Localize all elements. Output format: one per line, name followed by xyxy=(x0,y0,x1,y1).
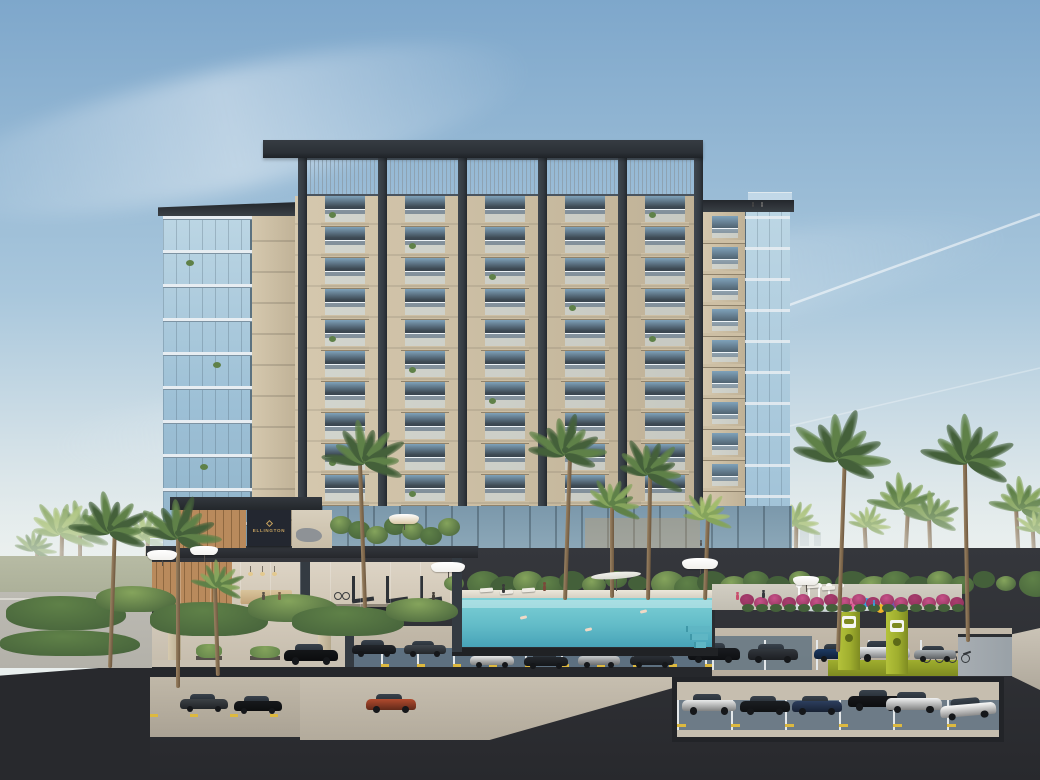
wing-floor-slab xyxy=(745,495,790,498)
hedge-base xyxy=(812,604,824,612)
ellington-sign-text: ELLINGTON xyxy=(253,528,285,533)
balcony-railing xyxy=(405,426,445,439)
floor-slab xyxy=(703,240,745,244)
ev-charging-icon xyxy=(842,616,856,628)
wing-floor-slab xyxy=(745,278,790,281)
balcony-railing xyxy=(485,209,525,222)
car xyxy=(748,644,798,662)
bicycle-wheel xyxy=(961,654,970,663)
hedge-base xyxy=(924,604,936,612)
car xyxy=(886,692,942,713)
car-wheel xyxy=(241,708,247,714)
umbrella-canopy xyxy=(389,514,419,524)
palm-trunk xyxy=(176,533,180,688)
balcony-plant xyxy=(200,464,208,470)
crown-rail xyxy=(298,158,703,160)
palm-crown xyxy=(792,519,799,525)
palm-crown xyxy=(609,500,616,506)
car-wheel xyxy=(721,707,728,714)
car-wheel xyxy=(269,708,275,714)
balcony-railing xyxy=(565,209,605,222)
hedge-base xyxy=(854,604,866,612)
crown-rail xyxy=(298,194,703,196)
balcony-railing xyxy=(485,488,525,501)
ellington-sign: ELLINGTON xyxy=(247,508,291,546)
car xyxy=(682,694,736,714)
wing-floor-slab xyxy=(745,433,790,436)
car xyxy=(352,640,396,656)
car-wheel xyxy=(410,651,416,657)
car-wheel xyxy=(434,651,440,657)
car xyxy=(284,644,338,664)
hedge-base xyxy=(896,604,908,612)
wing-floor-slab xyxy=(163,352,252,356)
hedge-base xyxy=(952,604,964,612)
person-head xyxy=(502,584,505,587)
hedge-base xyxy=(756,604,768,612)
car xyxy=(366,694,416,712)
car-wheel xyxy=(821,656,827,662)
hedge-base xyxy=(910,604,922,612)
shrub xyxy=(973,571,995,588)
balcony-railing xyxy=(405,209,445,222)
umbrella-canopy xyxy=(793,576,819,585)
person xyxy=(850,600,852,604)
balcony-railing xyxy=(645,426,685,439)
balcony-railing xyxy=(485,457,525,470)
person xyxy=(873,602,875,606)
car-wheel xyxy=(476,662,482,668)
palm-crown xyxy=(835,451,842,457)
shrub xyxy=(628,576,648,591)
wing-floor-slab xyxy=(745,371,790,374)
balcony-plant xyxy=(329,212,336,218)
car-wheel xyxy=(690,707,697,714)
person-head xyxy=(752,202,754,204)
hedge-base xyxy=(840,604,852,612)
wing-floor-slab xyxy=(163,386,252,390)
person xyxy=(752,204,754,208)
balcony-railing xyxy=(405,271,445,284)
palm-crown xyxy=(562,447,569,453)
car xyxy=(914,646,956,661)
wing-floor-slab xyxy=(163,454,252,458)
balcony-railing xyxy=(485,333,525,346)
umbrella-canopy xyxy=(431,562,465,572)
balcony-railing xyxy=(712,352,738,362)
palm-crown xyxy=(865,521,872,527)
wing-floor-slab xyxy=(745,216,790,219)
balcony-railing xyxy=(712,445,738,455)
palm-crown xyxy=(929,513,936,519)
person-head xyxy=(761,202,763,204)
wing-floor-slab xyxy=(163,488,252,492)
car xyxy=(740,696,790,714)
planter-shrub xyxy=(250,646,280,658)
car-wheel xyxy=(920,656,926,662)
car-wheel xyxy=(323,657,330,664)
car-wheel xyxy=(384,651,390,657)
facade-floor-line xyxy=(295,316,703,318)
palm-crown xyxy=(645,467,652,473)
car-wheel xyxy=(776,708,783,715)
earth-cut-left xyxy=(0,664,150,780)
facade-floor-line xyxy=(295,347,703,349)
balcony-railing xyxy=(405,333,445,346)
hedge xyxy=(386,598,458,622)
hedge-base xyxy=(742,604,754,612)
balcony-railing xyxy=(712,259,738,269)
landscape-rock xyxy=(296,528,322,542)
balcony-plant xyxy=(489,398,496,404)
balcony-plant xyxy=(186,260,194,266)
balcony-railing xyxy=(485,426,525,439)
umbrella-canopy xyxy=(190,546,218,555)
wing-floor-slab xyxy=(163,318,252,322)
car-wheel xyxy=(864,654,871,661)
pier-floor-line xyxy=(252,302,298,304)
crown-slat-screen xyxy=(298,158,703,196)
umbrella-canopy xyxy=(147,550,177,560)
balcony-railing xyxy=(325,364,365,377)
pool-steps xyxy=(690,634,708,640)
palm-crown xyxy=(31,545,38,551)
car-wheel xyxy=(502,662,508,668)
facade-floor-line xyxy=(295,409,703,411)
wing-floor-slab xyxy=(163,284,252,288)
balcony-railing xyxy=(645,302,685,315)
pool-coping xyxy=(455,590,715,598)
balcony-railing xyxy=(485,302,525,315)
palm-trunk xyxy=(610,503,614,598)
person-head xyxy=(850,598,852,600)
balcony-railing xyxy=(325,271,365,284)
hedge-base xyxy=(798,604,810,612)
wing-floor-slab xyxy=(745,247,790,250)
car-wheel xyxy=(894,706,902,714)
umbrella-canopy xyxy=(682,558,718,569)
floor-slab xyxy=(703,333,745,337)
right-wing-roof xyxy=(700,200,794,212)
wing-floor-slab xyxy=(163,420,252,424)
car-wheel xyxy=(358,651,364,657)
wing-floor-slab xyxy=(745,309,790,312)
car-wheel xyxy=(662,662,668,668)
palm-crown xyxy=(362,455,369,461)
pier-floor-line xyxy=(252,457,298,459)
floor-slab xyxy=(703,395,745,399)
balcony-plant xyxy=(489,274,496,280)
ev-charging-icon xyxy=(890,620,904,632)
ev-plug-icon xyxy=(845,634,853,642)
wheel-stops xyxy=(677,724,999,727)
balcony-railing xyxy=(485,364,525,377)
car-wheel xyxy=(215,706,221,712)
car-wheel xyxy=(187,706,193,712)
balcony-railing xyxy=(405,457,445,470)
palm-crown xyxy=(215,581,222,587)
pier-floor-line xyxy=(252,488,298,490)
shrub xyxy=(438,518,460,536)
car-wheel xyxy=(636,662,642,668)
pier-floor-line xyxy=(252,426,298,428)
car-wheel xyxy=(292,657,299,664)
person xyxy=(700,542,702,546)
wheel-stops xyxy=(150,714,300,717)
person xyxy=(736,594,739,600)
car-wheel xyxy=(926,706,934,714)
person xyxy=(432,594,435,600)
car-wheel xyxy=(402,706,409,713)
balcony-railing xyxy=(712,290,738,300)
balcony-plant xyxy=(649,336,656,342)
pier-floor-line xyxy=(252,240,298,242)
floor-slab xyxy=(703,364,745,368)
car-wheel xyxy=(608,662,614,668)
car-wheel xyxy=(747,708,754,715)
facade-floor-line xyxy=(295,223,703,225)
hedge-base xyxy=(882,604,894,612)
hedge-base xyxy=(826,604,838,612)
floor-slab xyxy=(703,271,745,275)
person xyxy=(262,594,265,600)
balcony-railing xyxy=(645,240,685,253)
palm-crown xyxy=(107,525,114,531)
person xyxy=(502,587,505,593)
facade-floor-line xyxy=(295,254,703,256)
person xyxy=(762,592,765,598)
person xyxy=(543,585,546,591)
balcony-plant xyxy=(649,212,656,218)
balcony-railing xyxy=(712,414,738,424)
balcony-railing xyxy=(712,228,738,238)
balcony-railing xyxy=(645,395,685,408)
balcony-railing xyxy=(565,364,605,377)
wing-floor-slab xyxy=(745,402,790,405)
balcony-railing xyxy=(712,476,738,486)
person xyxy=(761,204,763,208)
balcony-railing xyxy=(645,271,685,284)
palm-crown xyxy=(175,530,182,536)
car xyxy=(180,694,228,712)
facade-floor-line xyxy=(295,378,703,380)
wing-floor-slab xyxy=(745,340,790,343)
person-head xyxy=(873,600,875,602)
pool-steps xyxy=(686,626,710,632)
palm-crown xyxy=(702,512,709,518)
ev-car-glyph xyxy=(892,623,902,628)
balcony-railing xyxy=(405,302,445,315)
car-wheel xyxy=(695,656,702,663)
car-wheel xyxy=(584,662,590,668)
car-wheel xyxy=(784,656,791,663)
balcony-railing xyxy=(485,240,525,253)
balcony-railing xyxy=(565,271,605,284)
balcony-plant xyxy=(569,305,576,311)
balcony-railing xyxy=(405,395,445,408)
pier-floor-line xyxy=(252,364,298,366)
balcony-railing xyxy=(712,383,738,393)
roof-slab xyxy=(263,140,703,158)
palm-crown xyxy=(899,501,906,507)
rooftop-terrace-railing xyxy=(748,192,792,200)
facade-floor-line xyxy=(295,285,703,287)
car-wheel xyxy=(755,656,762,663)
hedge-base xyxy=(938,604,950,612)
car-wheel xyxy=(556,663,562,669)
ev-car-glyph xyxy=(844,619,854,624)
balcony-railing xyxy=(645,364,685,377)
pier-floor-line xyxy=(252,271,298,273)
car xyxy=(792,696,842,714)
pool-waterline xyxy=(458,600,712,608)
hedge-base xyxy=(770,604,782,612)
floor-slab xyxy=(703,457,745,461)
car-wheel xyxy=(725,656,732,663)
car xyxy=(234,696,282,714)
glass-mullions xyxy=(745,212,790,556)
car xyxy=(404,641,446,656)
balcony-railing xyxy=(712,321,738,331)
balcony-railing xyxy=(325,240,365,253)
palm-crown xyxy=(965,454,972,460)
shrub xyxy=(996,576,1016,591)
car-wheel xyxy=(944,656,950,662)
wing-floor-slab xyxy=(163,250,252,254)
ev-plug-icon xyxy=(893,638,901,646)
floor-slab xyxy=(703,488,745,492)
balcony-railing xyxy=(565,395,605,408)
palm-crown xyxy=(1033,525,1040,531)
car-wheel xyxy=(856,703,863,710)
floor-slab xyxy=(703,426,745,430)
palm-crown xyxy=(1019,503,1026,509)
ellington-logo-icon xyxy=(265,519,272,526)
balcony-plant xyxy=(213,362,221,368)
architectural-rendering: ELLINGTON xyxy=(0,0,1040,780)
balcony-railing xyxy=(325,302,365,315)
car-wheel xyxy=(530,663,536,669)
balcony-plant xyxy=(409,243,416,249)
person-head xyxy=(543,582,546,585)
floor-slab xyxy=(703,302,745,306)
wing-floor-slab xyxy=(745,464,790,467)
wing-floor-slab xyxy=(163,216,252,220)
car-wheel xyxy=(828,708,835,715)
balcony-plant xyxy=(329,336,336,342)
pier-floor-line xyxy=(252,395,298,397)
palm-crown xyxy=(57,527,64,533)
balcony-railing xyxy=(325,395,365,408)
hedge xyxy=(0,630,140,656)
balcony-railing xyxy=(565,333,605,346)
balcony-railing xyxy=(565,240,605,253)
pool-base-slab xyxy=(452,648,718,656)
car-wheel xyxy=(799,708,806,715)
hedge-base xyxy=(784,604,796,612)
car-wheel xyxy=(373,706,380,713)
floor-slab-dark xyxy=(150,667,712,677)
person-head xyxy=(700,540,702,542)
pier-floor-line xyxy=(252,333,298,335)
balcony-plant xyxy=(409,367,416,373)
person xyxy=(278,594,281,600)
